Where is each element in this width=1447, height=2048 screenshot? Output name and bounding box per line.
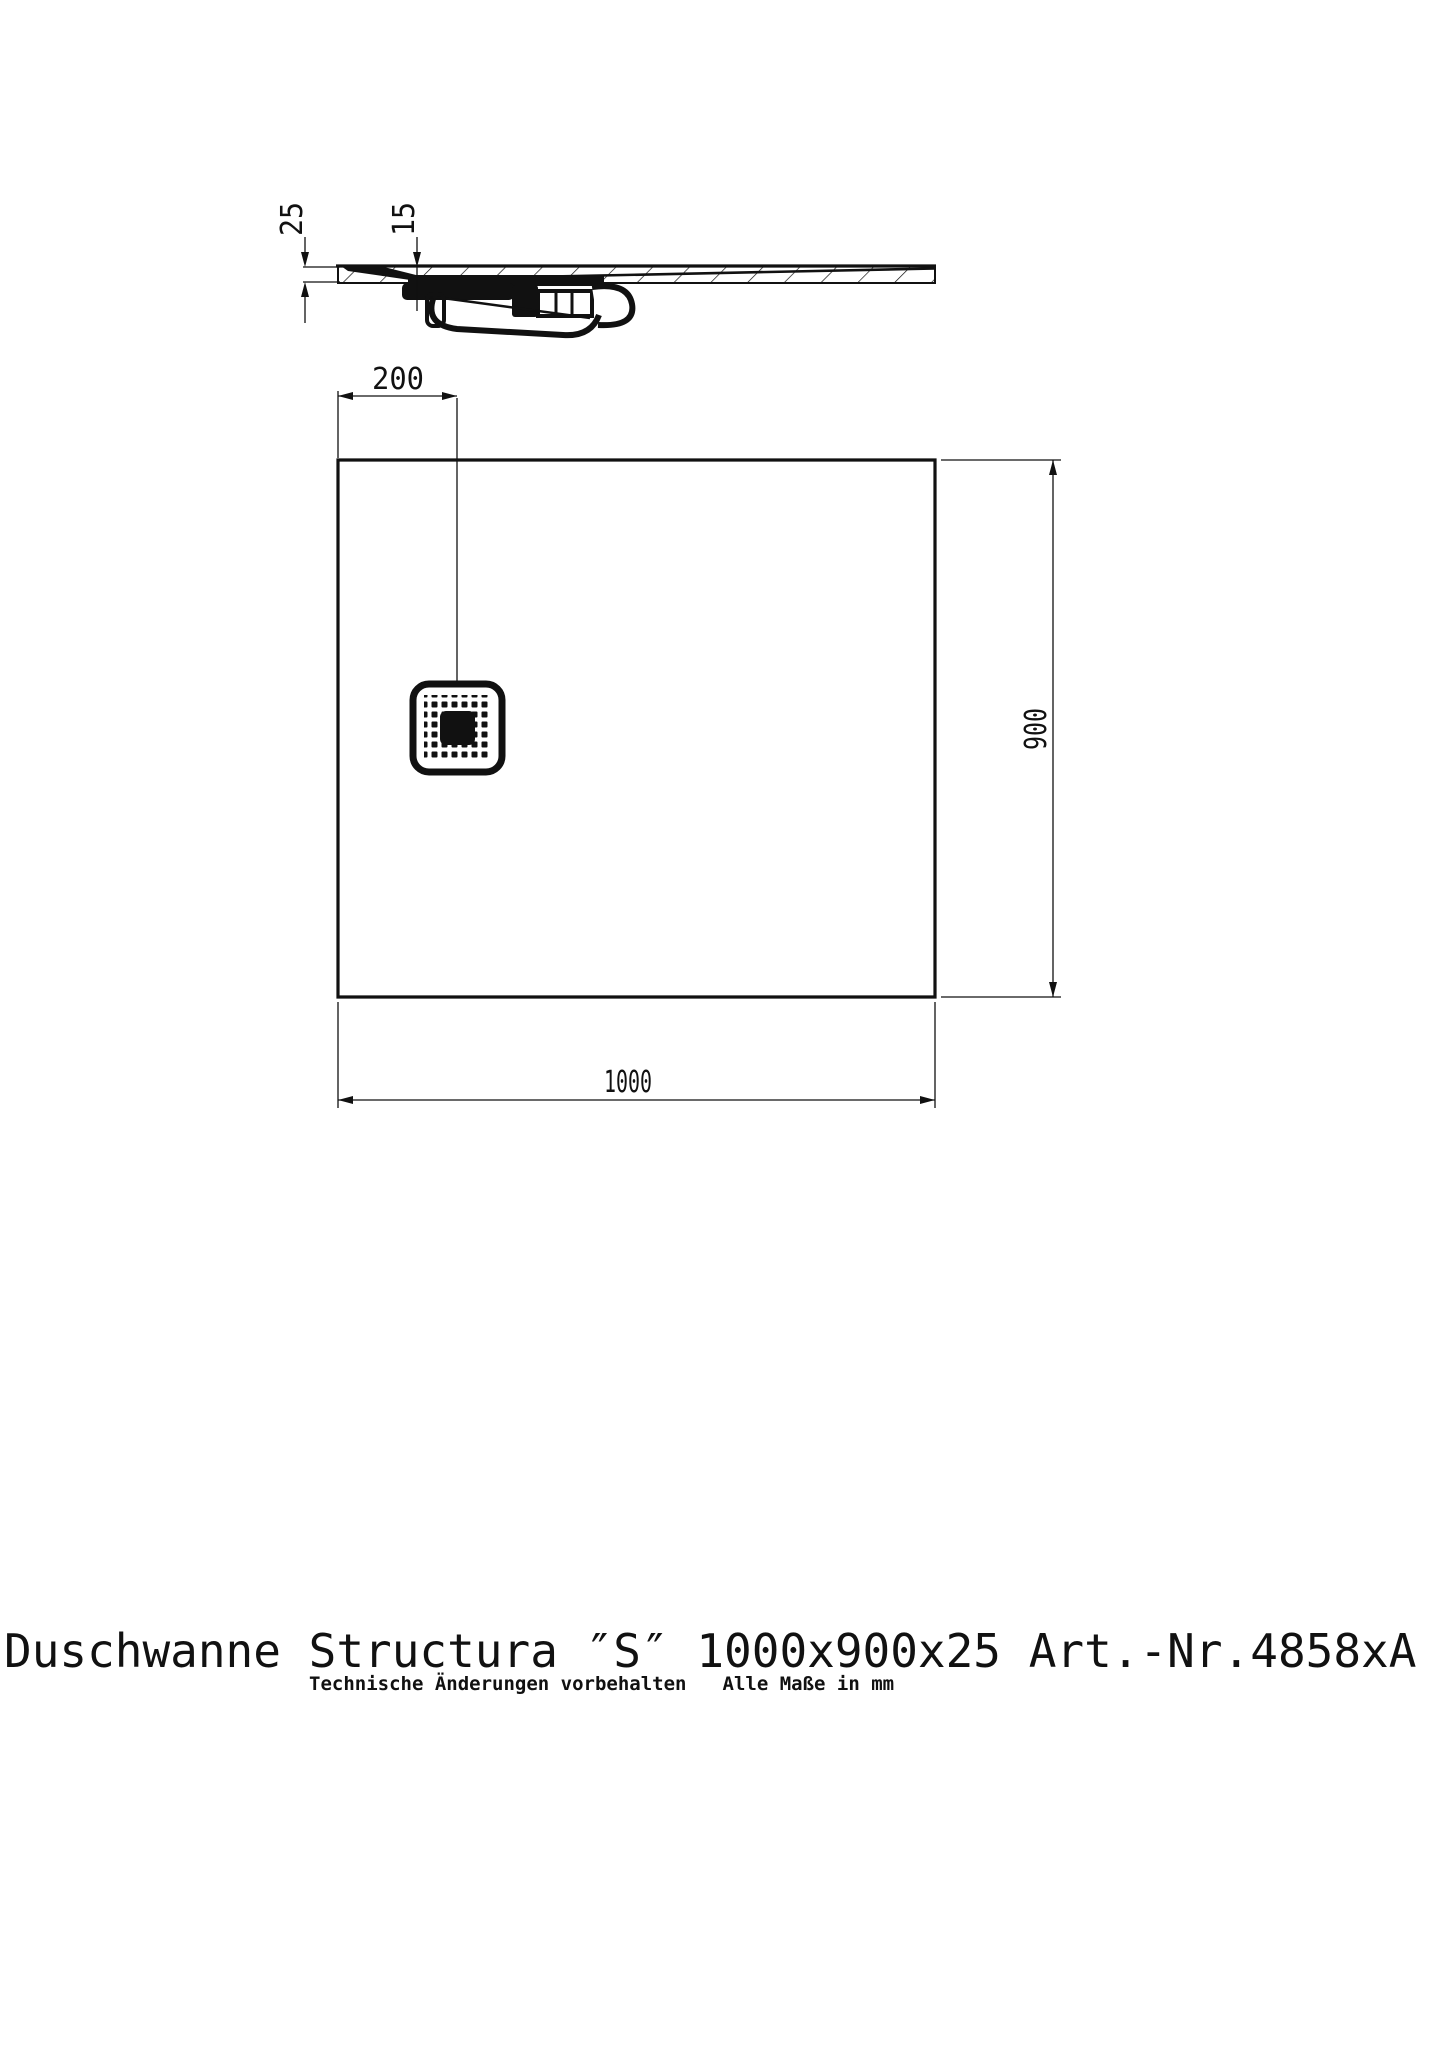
technical-drawing: 25 15 200 [0,0,1447,2048]
dimension-width: 1000 [338,1002,935,1108]
subtitle-note: Technische Änderungen vorbehalten [309,1673,687,1695]
dim-label-1000: 1000 [604,1065,652,1100]
plan-view: 200 900 1000 [338,362,1061,1108]
section-view: 25 15 [275,202,936,335]
drawing-subtitle: Technische Änderungen vorbehalten Alle M… [309,1673,894,1695]
dim-label-15: 15 [387,202,422,236]
dim-label-200: 200 [372,362,424,397]
drain-trap [402,275,632,335]
drain-grate [413,684,502,772]
dimension-depth: 900 [941,460,1061,997]
dim-label-25: 25 [275,202,310,236]
dimension-thickness: 25 [275,202,340,323]
dim-label-900: 900 [1019,708,1054,750]
dimension-drain-offset: 200 [338,362,457,458]
subtitle-units: Alle Maße in mm [723,1673,895,1695]
drawing-title: Duschwanne Structura ″S″ 1000x900x25 Art… [4,1624,1416,1678]
